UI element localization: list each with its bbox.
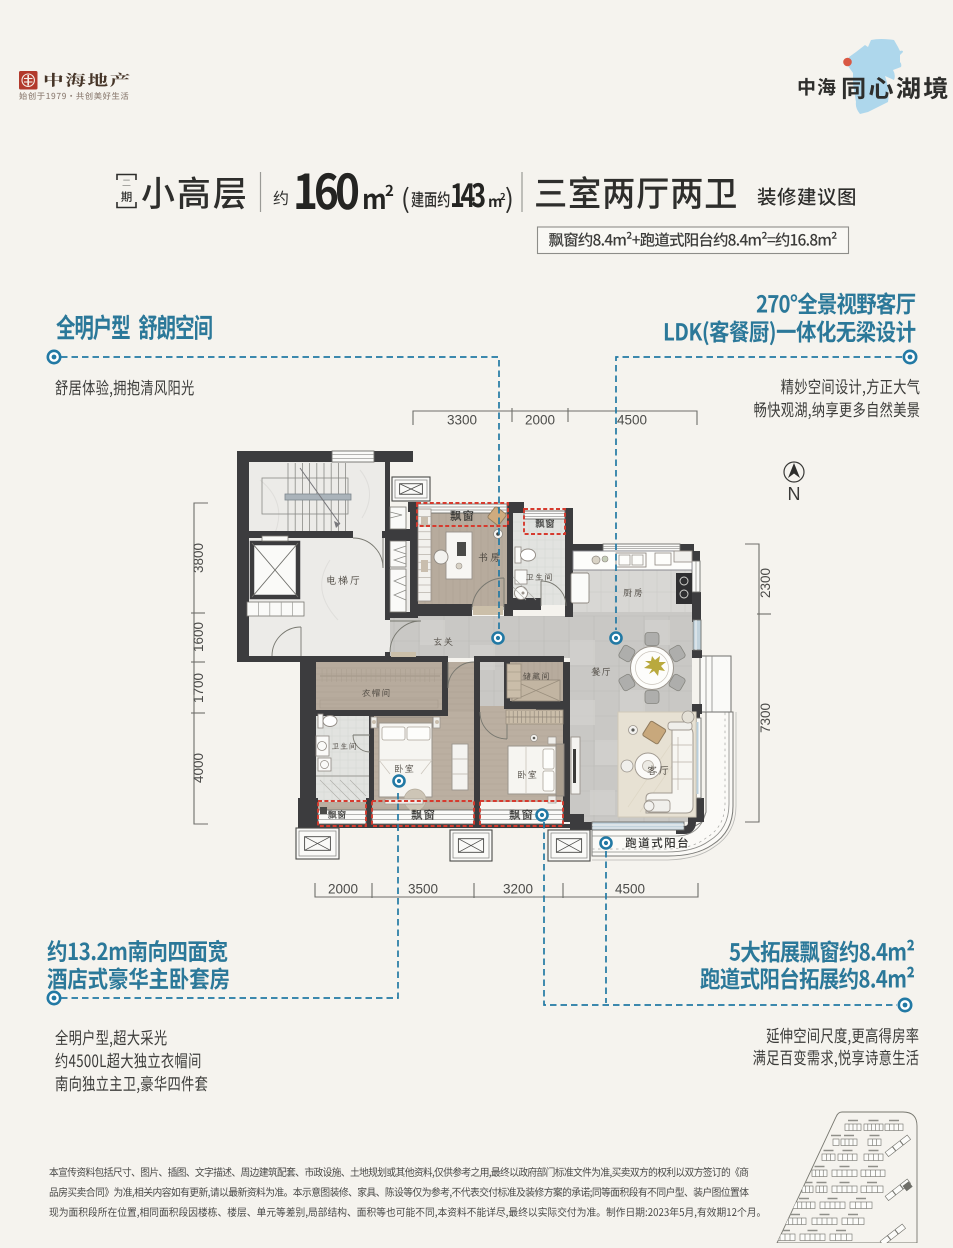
svg-text:2000: 2000: [328, 882, 358, 897]
svg-text:4000: 4000: [191, 753, 206, 783]
svg-text:1600: 1600: [191, 622, 206, 652]
svg-text:4500: 4500: [617, 413, 647, 428]
svg-text:4500: 4500: [615, 882, 645, 897]
svg-text:3300: 3300: [447, 413, 477, 428]
svg-text:2300: 2300: [758, 568, 773, 598]
svg-text:3500: 3500: [408, 882, 438, 897]
svg-text:N: N: [788, 484, 801, 504]
svg-text:2000: 2000: [525, 413, 555, 428]
svg-text:3800: 3800: [191, 543, 206, 573]
svg-text:7300: 7300: [758, 703, 773, 733]
svg-text:3200: 3200: [503, 882, 533, 897]
svg-text:1700: 1700: [191, 673, 206, 703]
